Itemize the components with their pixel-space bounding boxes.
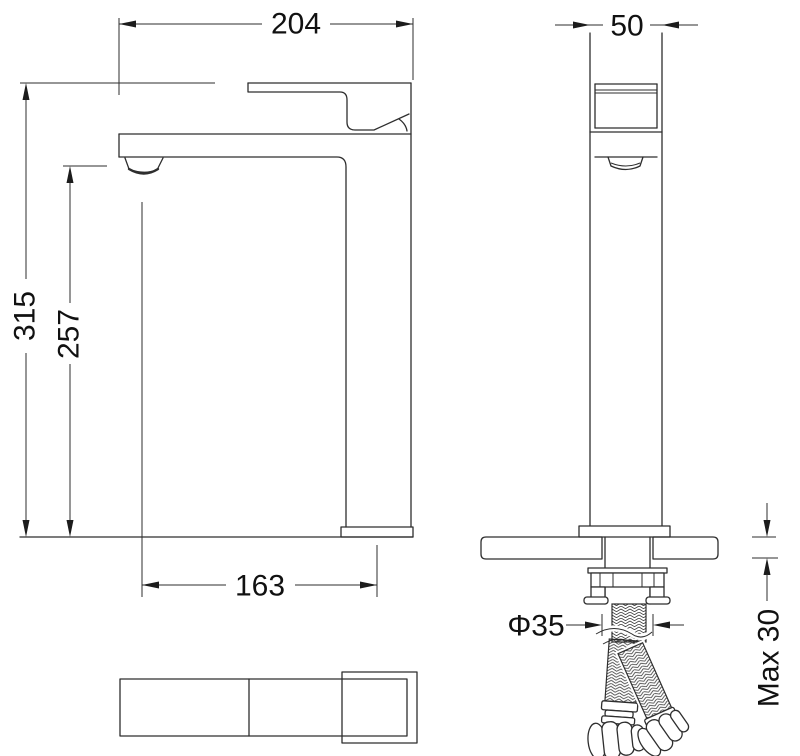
- arrowhead: [67, 520, 74, 537]
- dim-163-label: 163: [235, 570, 285, 603]
- dimension-max30: Max 30: [752, 503, 786, 707]
- front-view: [481, 33, 718, 756]
- dim-50-label: 50: [610, 10, 643, 43]
- arrowhead: [396, 21, 413, 28]
- arrowhead: [764, 558, 771, 575]
- arrowhead: [23, 83, 30, 100]
- dimension-257: 257: [53, 166, 108, 537]
- plan-body-outline: [120, 679, 407, 736]
- arrowhead: [653, 622, 670, 629]
- arrowhead: [67, 166, 74, 183]
- arrowhead: [585, 622, 602, 629]
- lock-nut: [591, 573, 664, 587]
- dimension-163: 163: [142, 202, 377, 603]
- dimension-phi35: Φ35: [507, 610, 684, 643]
- spout-bottom-and-body-left: [119, 157, 346, 527]
- handle-lever-underside: [248, 83, 409, 130]
- dim-204-label: 204: [271, 8, 321, 41]
- aerator-side-rim: [129, 169, 158, 174]
- handle-pivot-arc: [399, 119, 407, 131]
- mounting-hardware: [584, 568, 670, 604]
- dim-257-label: 257: [53, 309, 86, 359]
- arrowhead: [573, 22, 590, 29]
- arrowhead: [142, 582, 159, 589]
- dimension-50: 50: [555, 10, 698, 43]
- dim-max30-label: Max 30: [753, 609, 786, 707]
- arrowhead: [23, 520, 30, 537]
- dimension-204: 204: [119, 8, 413, 96]
- arrowhead: [360, 582, 377, 589]
- bracket-foot-right: [646, 597, 670, 604]
- plan-view: [120, 672, 417, 743]
- dim-315-label: 315: [9, 291, 42, 341]
- base-plinth-side: [341, 527, 413, 537]
- base-plinth-front: [579, 526, 670, 537]
- arrowhead: [662, 22, 679, 29]
- arrowhead: [119, 21, 136, 28]
- aerator-front-cup: [608, 157, 643, 170]
- countertop: [481, 537, 718, 559]
- dimension-315: 315: [9, 83, 216, 537]
- countertop-right-slab: [653, 537, 718, 559]
- faucet-dimension-drawing: 204 50 315 257 163: [0, 0, 800, 756]
- countertop-left-slab: [481, 537, 602, 559]
- left-hose-nut: [586, 718, 646, 756]
- aerator-front-inner: [611, 163, 640, 166]
- plan-handle-outline: [342, 672, 417, 743]
- bracket-foot-left: [584, 597, 608, 604]
- arrowhead: [764, 520, 771, 537]
- drawing-canvas: 204 50 315 257 163: [0, 0, 800, 756]
- dim-phi35-label: Φ35: [507, 610, 564, 643]
- washer-plate: [588, 568, 667, 573]
